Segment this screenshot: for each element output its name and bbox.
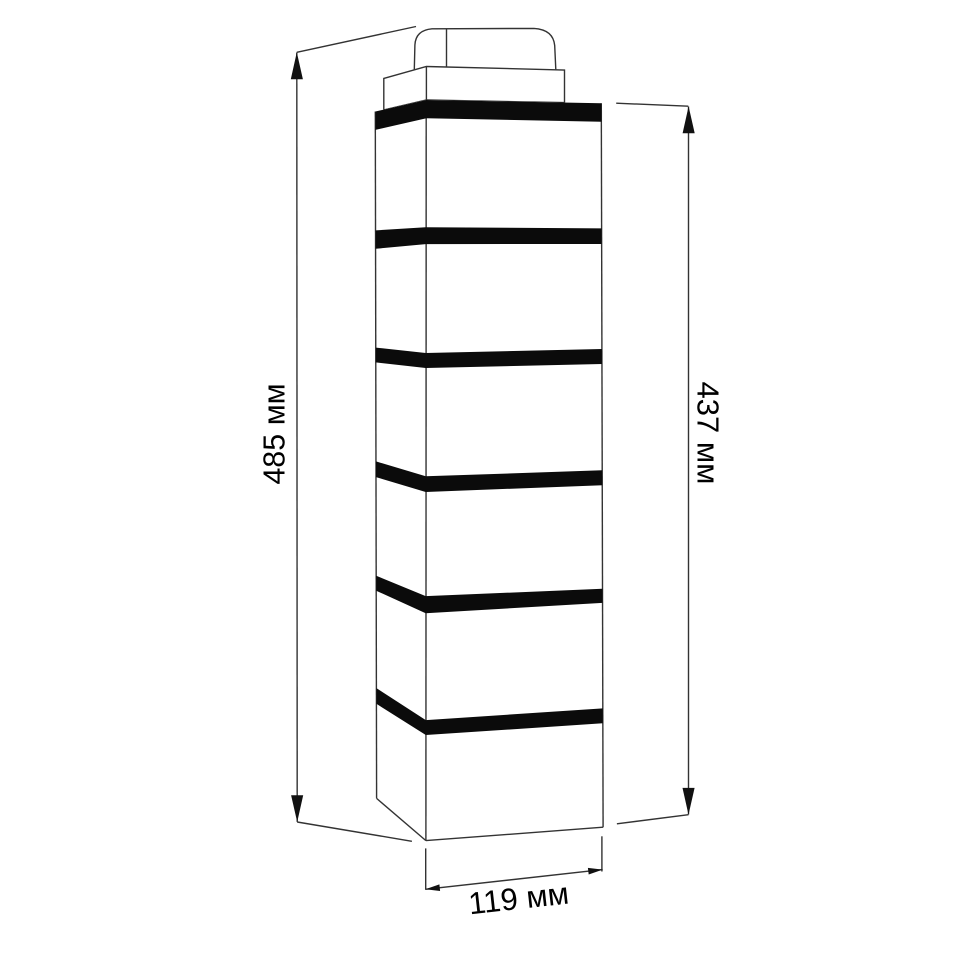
svg-text:437 мм: 437 мм <box>690 382 725 485</box>
svg-text:485 мм: 485 мм <box>258 383 292 484</box>
